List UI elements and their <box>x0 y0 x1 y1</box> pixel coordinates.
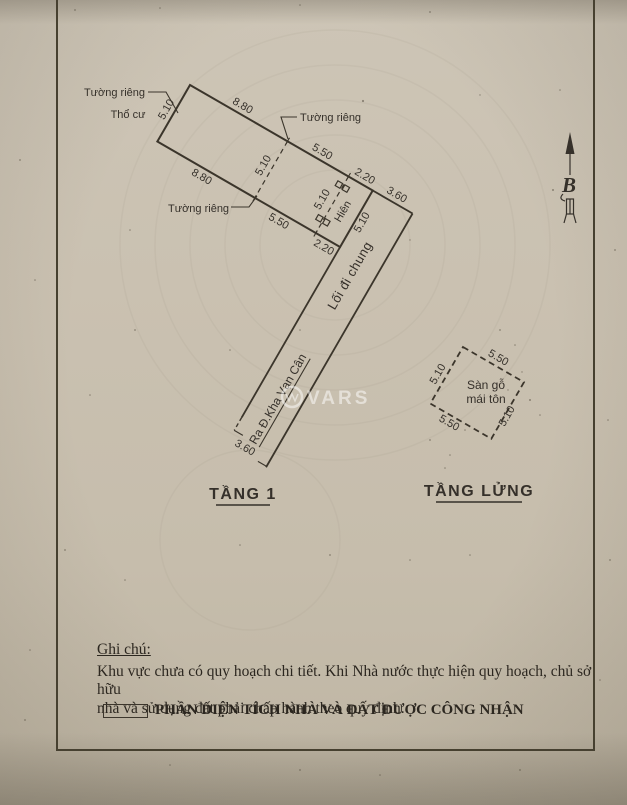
dimension-label: 5.10 <box>497 404 518 429</box>
mezzanine-title: TẦNG LỬNG <box>424 481 534 500</box>
floor1-title: TẦNG 1 <box>209 484 277 503</box>
dimension-label: 2.20 <box>352 166 377 187</box>
legend-label: PHẦN DIỆN TÍCH NHÀ VÀ ĐẤT ĐƯỢC CÔNG NHẬN <box>155 702 524 719</box>
dimension-label: 5.10 <box>156 97 177 122</box>
legend-swatch <box>103 704 148 718</box>
watermark: VARS <box>282 387 370 409</box>
legend-row: PHẦN DIỆN TÍCH NHÀ VÀ ĐẤT ĐƯỢC CÔNG NHẬN <box>103 702 597 720</box>
photographed-document: B <box>0 0 627 805</box>
porch-label: Hiên <box>332 199 354 225</box>
wall-label: Tường riêng <box>300 112 361 124</box>
mezzanine-material-label: Sàn gỗ <box>467 377 505 392</box>
dimension-label: 5.10 <box>428 362 449 387</box>
notes-heading: Ghi chú: <box>97 641 597 660</box>
land-type-label: Thổ cư <box>111 109 147 121</box>
dimension-label: 5.50 <box>266 211 291 232</box>
leader-line <box>281 117 297 139</box>
dimension-label: 5.10 <box>352 210 373 235</box>
north-arrow: B <box>561 132 576 223</box>
dimension-label: 5.50 <box>486 348 511 369</box>
wall-label: Tường riêng <box>168 203 229 215</box>
watermark-text: VARS <box>307 388 370 409</box>
dimension-label: 5.50 <box>437 413 462 434</box>
mezzanine-material-label: mái tôn <box>466 392 505 406</box>
north-arrow-head <box>566 132 575 154</box>
corridor-left-edge-end <box>234 417 242 430</box>
dimension-label: 8.80 <box>189 167 214 188</box>
dimension-label: 5.10 <box>253 153 274 178</box>
notes-line: Khu vực chưa có quy hoạch chi tiết. Khi … <box>97 663 597 700</box>
wall-label: Tường riêng <box>84 87 145 99</box>
dimension-label: 8.80 <box>230 96 255 117</box>
north-letter: B <box>561 173 576 197</box>
dimension-label: 2.20 <box>311 237 336 258</box>
dimension-label: 5.50 <box>310 142 335 163</box>
